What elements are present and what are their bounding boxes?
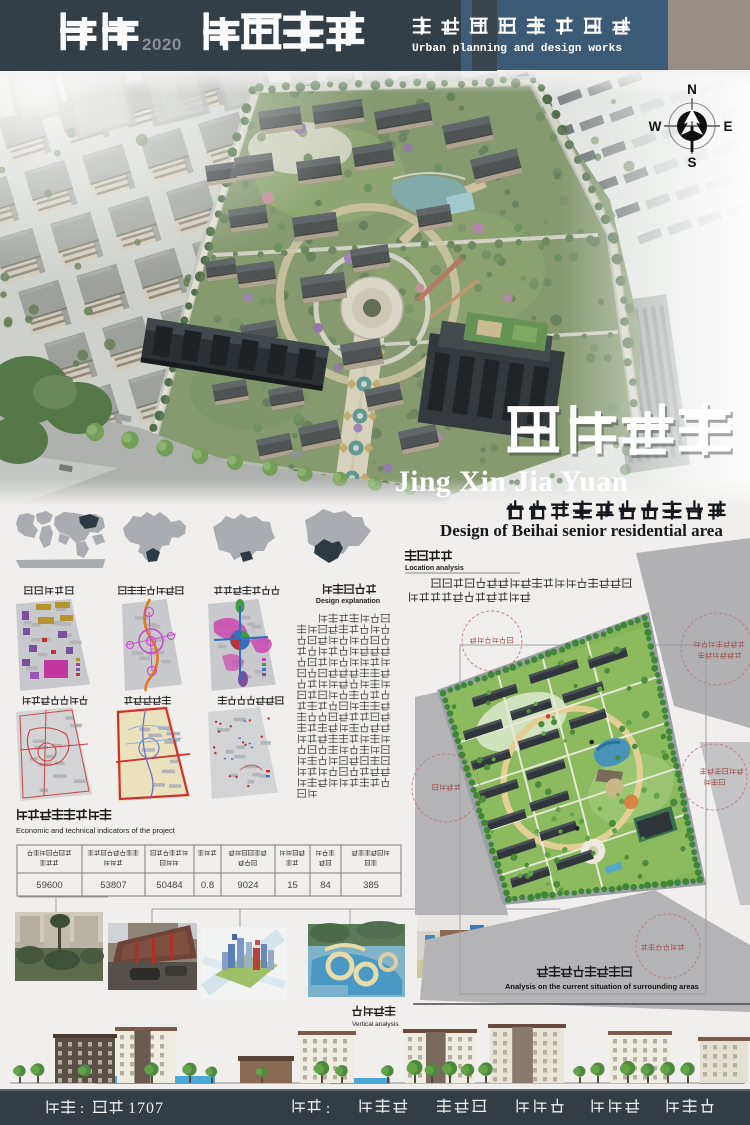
- svg-text:W: W: [649, 119, 662, 134]
- svg-text::: :: [326, 1101, 330, 1117]
- svg-text:Location analysis: Location analysis: [405, 565, 464, 572]
- svg-text:Vertical analysis: Vertical analysis: [352, 1021, 399, 1028]
- svg-text:15: 15: [287, 880, 298, 891]
- svg-text:Urban planning and design work: Urban planning and design works: [412, 43, 622, 55]
- svg-text:84: 84: [320, 880, 331, 891]
- svg-text:Design explanation: Design explanation: [316, 598, 380, 605]
- svg-text:Economic and technical indicat: Economic and technical indicators of the…: [16, 826, 176, 835]
- svg-text:S: S: [687, 155, 696, 170]
- svg-text:59600: 59600: [36, 880, 62, 891]
- svg-text:50484: 50484: [156, 880, 182, 891]
- svg-text:Design of Beihai senior reside: Design of Beihai senior residential area: [440, 521, 723, 540]
- svg-text:9024: 9024: [237, 880, 258, 891]
- svg-text:E: E: [723, 119, 732, 134]
- svg-text::: :: [80, 1101, 84, 1117]
- svg-text:0.8: 0.8: [201, 880, 214, 891]
- svg-text:N: N: [687, 82, 697, 97]
- svg-text:385: 385: [363, 880, 379, 891]
- svg-text:1707: 1707: [128, 1100, 164, 1117]
- svg-text:53807: 53807: [100, 880, 126, 891]
- svg-text:Analysis on the current situat: Analysis on the current situation of sur…: [505, 982, 699, 991]
- svg-text:Jing Xin Jia Yuan: Jing Xin Jia Yuan: [395, 466, 628, 498]
- svg-text:2020: 2020: [142, 35, 182, 54]
